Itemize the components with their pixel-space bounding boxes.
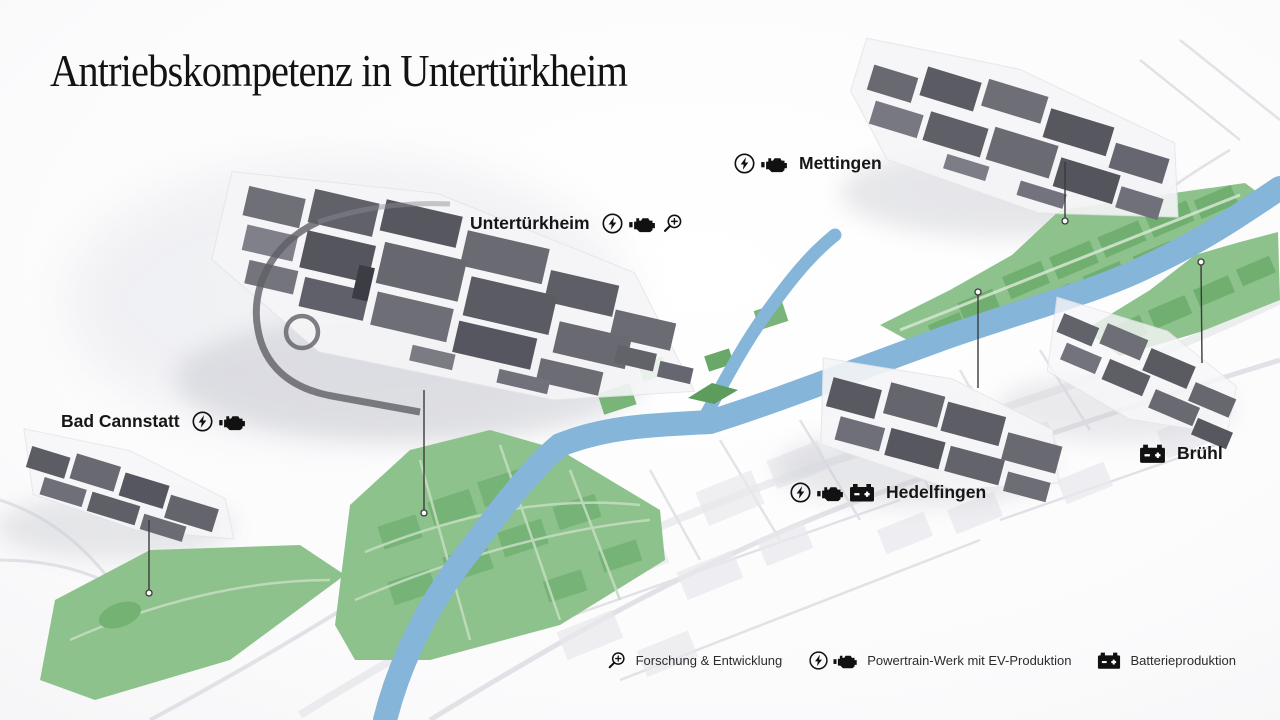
engine-icon <box>761 153 788 174</box>
engine-icon <box>629 213 656 234</box>
map-illustration <box>0 0 1280 720</box>
engine-icon <box>833 651 858 670</box>
battery-icon <box>1139 443 1166 464</box>
page-title: Antriebskompetenz in Untertürkheim <box>50 44 627 97</box>
site-label-bruehl: Brühl <box>1139 443 1229 464</box>
magnifier-plus-icon <box>606 650 627 671</box>
site-label-mettingen: Mettingen <box>733 152 888 175</box>
site-name: Brühl <box>1171 443 1229 464</box>
engine-icon <box>219 411 246 432</box>
city-block <box>695 470 764 526</box>
legend-item-powertrain: Powertrain-Werk mit EV-Produktion <box>808 650 1071 671</box>
ev-lightning-circle-icon <box>191 410 214 433</box>
site-label-bad-cannstatt: Bad Cannstatt <box>61 410 246 433</box>
legend: Forschung & Entwicklung Powertrain-Werk … <box>606 650 1236 671</box>
magnifier-plus-icon <box>661 212 684 235</box>
ev-lightning-circle-icon <box>733 152 756 175</box>
legend-label: Forschung & Entwicklung <box>636 653 783 668</box>
city-block <box>677 550 744 600</box>
city-block <box>877 512 933 555</box>
legend-label: Batterieproduktion <box>1130 653 1236 668</box>
river-island <box>688 383 738 404</box>
street <box>1140 60 1240 140</box>
battery-icon <box>1097 651 1121 670</box>
engine-icon <box>817 482 844 503</box>
city-block <box>1057 462 1113 505</box>
site-name: Bad Cannstatt <box>61 411 186 432</box>
site-name: Hedelfingen <box>880 482 992 503</box>
street <box>1180 40 1280 120</box>
legend-item-battery: Batterieproduktion <box>1097 651 1236 670</box>
site-label-hedelfingen: Hedelfingen <box>789 481 992 504</box>
site-label-untertuerkheim: Untertürkheim <box>470 212 684 235</box>
powertrain-icon-pair <box>808 650 858 671</box>
site-name: Mettingen <box>793 153 888 174</box>
battery-icon <box>849 482 875 503</box>
ev-lightning-circle-icon <box>601 212 624 235</box>
greenspace-bad-cannstatt <box>40 545 345 700</box>
ev-lightning-circle-icon <box>808 650 829 671</box>
legend-label: Powertrain-Werk mit EV-Produktion <box>867 653 1071 668</box>
site-name: Untertürkheim <box>470 213 596 234</box>
legend-item-research: Forschung & Entwicklung <box>606 650 783 671</box>
ev-lightning-circle-icon <box>789 481 812 504</box>
plant-map-infographic: Antriebskompetenz in Untertürkheim Metti… <box>0 0 1280 720</box>
